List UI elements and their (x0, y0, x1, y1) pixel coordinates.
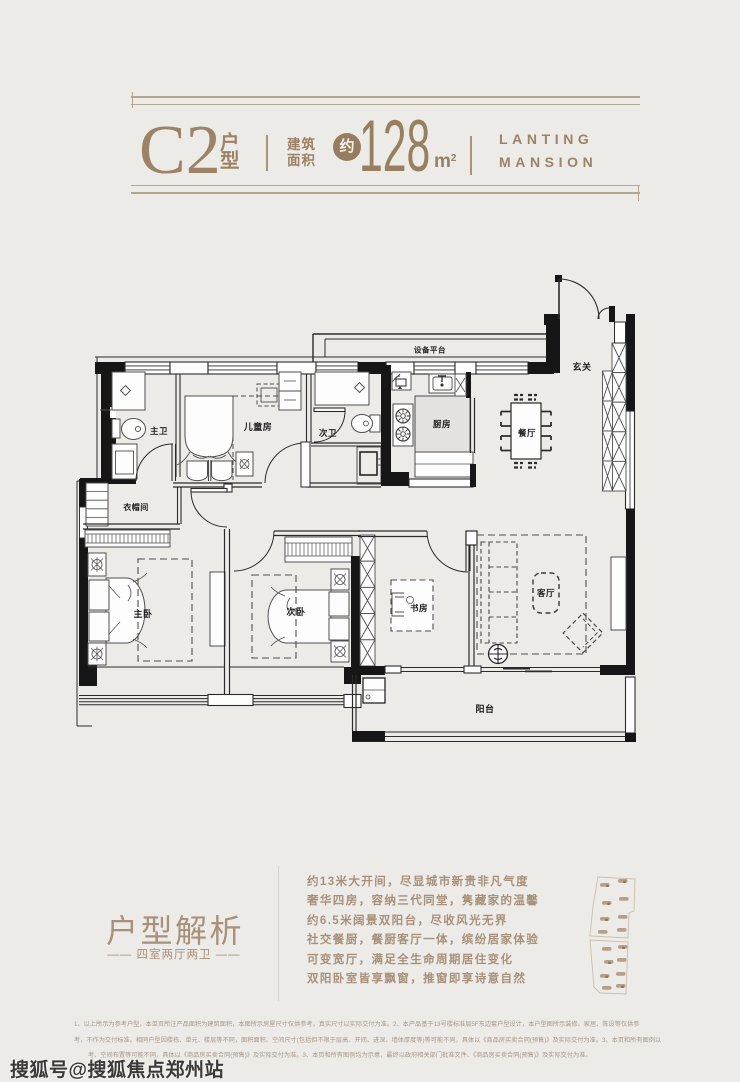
svg-text:阳台: 阳台 (475, 703, 494, 714)
svg-text:玄关: 玄关 (572, 361, 591, 372)
svg-text:设备平台: 设备平台 (414, 345, 446, 355)
svg-text:餐厅: 餐厅 (517, 428, 536, 438)
svg-text:主卧: 主卧 (133, 608, 152, 619)
svg-text:次卫: 次卫 (319, 428, 337, 438)
svg-text:厨房: 厨房 (433, 419, 451, 429)
svg-text:主卫: 主卫 (150, 426, 168, 436)
svg-text:次卧: 次卧 (286, 606, 305, 617)
svg-text:衣帽间: 衣帽间 (123, 502, 149, 512)
svg-text:儿童房: 儿童房 (243, 421, 273, 432)
svg-text:书房: 书房 (410, 603, 428, 613)
svg-text:客厅: 客厅 (536, 588, 555, 598)
